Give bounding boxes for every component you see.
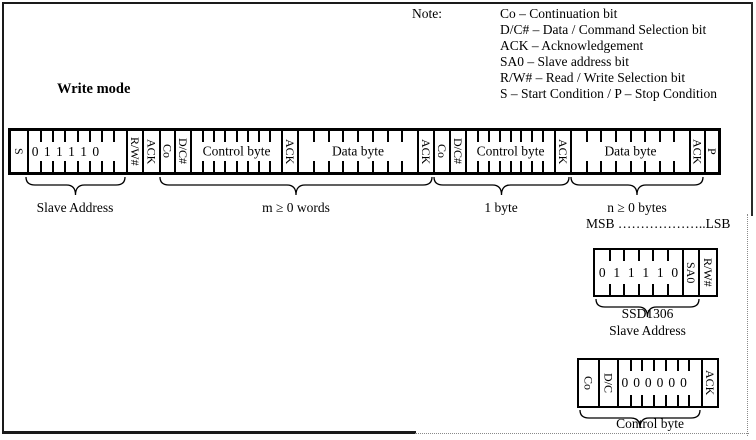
frame-cell-s: S	[11, 131, 27, 172]
one-byte-label: 1 byte	[441, 200, 561, 216]
bit-value: 0	[621, 375, 628, 391]
bit-slot: 1	[639, 250, 654, 295]
frame-cell-ack: ACK	[417, 131, 433, 172]
note-line: D/C# – Data / Command Selection bit	[500, 22, 717, 38]
bit-slot	[572, 131, 587, 172]
frame-cell-d-c: D/C#	[449, 131, 465, 172]
note-definitions: Co – Continuation bitD/C# – Data / Comma…	[500, 6, 717, 101]
control-byte-frame: CoD/C000000ACK	[577, 358, 719, 408]
bit-slot: 1	[624, 250, 639, 295]
frame-cell-slave-address-bits: 011110	[27, 131, 126, 172]
rotated-label: Co	[162, 144, 174, 158]
bit-slot	[270, 131, 281, 172]
page-border-right-dotted	[747, 214, 748, 436]
frame-cell-control-byte: Control byte	[190, 131, 281, 172]
bit-value: 1	[68, 144, 75, 160]
bit-value: 1	[56, 144, 63, 160]
page-border-right-solid	[751, 2, 753, 216]
bit-value: 1	[80, 144, 87, 160]
rotated-label: D/C	[603, 373, 615, 393]
bit-value: 0	[92, 144, 99, 160]
bit-slot	[314, 131, 329, 172]
frame-cell-co: Co	[579, 360, 598, 406]
one-byte-brace	[433, 176, 570, 198]
n-bytes-brace	[570, 176, 704, 198]
bit-slot	[402, 131, 417, 172]
bit-slot	[343, 131, 358, 172]
bit-value: 0	[657, 375, 664, 391]
rotated-label: P	[706, 148, 718, 155]
page-border-bottom-solid	[2, 431, 416, 434]
ssd1306-slave-address-frame: 011110SA0R/W#	[593, 248, 718, 297]
frame-cell-ack: ACK	[281, 131, 297, 172]
frame-cell-ack: ACK	[701, 360, 717, 406]
bit-value: 0	[668, 375, 675, 391]
frame-cell-ssd1306-address-bits: 011110	[595, 250, 682, 295]
bit-slot	[373, 131, 388, 172]
bit-value: 1	[44, 144, 51, 160]
bit-slot	[299, 131, 314, 172]
bit-value: 0	[32, 144, 39, 160]
frame-cell-co: Co	[159, 131, 174, 172]
page-border-bottom-dotted	[415, 433, 749, 434]
note-block: Note: Co – Continuation bitD/C# – Data /…	[412, 6, 717, 101]
frame-cell-d-c: D/C#	[174, 131, 190, 172]
rotated-label: ACK	[692, 139, 704, 164]
frame-cell-ack: ACK	[142, 131, 159, 172]
bit-value: 1	[613, 265, 620, 281]
frame-cell-r-w: R/W#	[698, 250, 716, 295]
ssd1306-caption-line2: Slave Address	[585, 322, 710, 339]
bit-value: 0	[680, 375, 687, 391]
slave-address-label: Slave Address	[15, 200, 135, 216]
bit-value: 0	[599, 265, 606, 281]
rotated-label: D/C#	[452, 138, 464, 164]
bit-slot	[616, 131, 631, 172]
frame-cell-d-c: D/C	[598, 360, 617, 406]
rotated-label: R/W#	[129, 137, 141, 166]
msb-lsb-label: MSB ………………..LSB	[586, 216, 730, 232]
ssd1306-caption-line1: SSD1306	[585, 305, 710, 322]
slave-address-brace	[25, 176, 126, 198]
bit-slot	[660, 131, 675, 172]
frame-cell-p: P	[704, 131, 718, 172]
bit-slot	[674, 131, 689, 172]
frame-cell-data-byte: Data byte	[297, 131, 417, 172]
bit-slot	[587, 131, 602, 172]
i2c-write-frame: S011110R/W#ACKCoD/C#Control byteACKData …	[8, 128, 721, 175]
bit-slot: 0	[595, 250, 610, 295]
bit-value: 0	[645, 375, 652, 391]
frame-cell-control-byte: Control byte	[465, 131, 554, 172]
n-bytes-label: n ≥ 0 bytes	[577, 200, 697, 216]
bit-slot	[631, 131, 646, 172]
note-line: ACK – Acknowledgement	[500, 38, 717, 54]
note-label: Note:	[412, 6, 500, 101]
note-line: Co – Continuation bit	[500, 6, 717, 22]
bit-slot	[114, 131, 126, 172]
rotated-label: S	[13, 148, 25, 155]
bit-slot	[329, 131, 344, 172]
rotated-label: SA0	[685, 262, 697, 283]
frame-cell-sa0: SA0	[682, 250, 698, 295]
bit-value: 1	[628, 265, 635, 281]
bit-value: 1	[657, 265, 664, 281]
rotated-label: ACK	[284, 139, 296, 164]
bit-slot	[543, 131, 554, 172]
datasheet-page: Note: Co – Continuation bitD/C# – Data /…	[0, 0, 756, 440]
rotated-label: R/W#	[702, 258, 714, 287]
m-words-label: m ≥ 0 words	[236, 200, 356, 216]
note-line: S – Start Condition / P – Stop Condition	[500, 86, 717, 102]
note-line: SA0 – Slave address bit	[500, 54, 717, 70]
rotated-label: ACK	[420, 139, 432, 164]
m-words-brace	[159, 176, 433, 198]
frame-cell-r-w: R/W#	[126, 131, 142, 172]
control-byte-caption: Control byte	[590, 415, 710, 432]
page-border-top	[2, 2, 753, 4]
rotated-label: Co	[583, 376, 595, 390]
bit-value: 0	[671, 265, 678, 281]
bit-slot: 0	[668, 250, 683, 295]
page-border-left	[2, 2, 4, 434]
bit-slot	[388, 131, 403, 172]
rotated-label: D/C#	[177, 138, 189, 164]
bit-slot	[645, 131, 660, 172]
note-line: R/W# – Read / Write Selection bit	[500, 70, 717, 86]
bit-slot	[601, 131, 616, 172]
frame-cell-co: Co	[433, 131, 449, 172]
rotated-label: Co	[436, 144, 448, 158]
frame-cell-data-byte: Data byte	[570, 131, 689, 172]
rotated-label: ACK	[146, 139, 158, 164]
rotated-label: ACK	[704, 370, 716, 395]
ssd1306-caption: SSD1306 Slave Address	[585, 305, 710, 339]
frame-cell-ack: ACK	[554, 131, 570, 172]
rotated-label: ACK	[557, 139, 569, 164]
bit-value: 1	[642, 265, 649, 281]
frame-cell-control-byte-bits: 000000	[617, 360, 701, 406]
bit-slot	[358, 131, 373, 172]
bit-slot: 1	[653, 250, 668, 295]
frame-cell-ack: ACK	[689, 131, 704, 172]
bit-slot	[689, 360, 701, 406]
write-mode-heading: Write mode	[57, 81, 130, 98]
bit-value: 0	[633, 375, 640, 391]
bit-slot: 1	[610, 250, 625, 295]
